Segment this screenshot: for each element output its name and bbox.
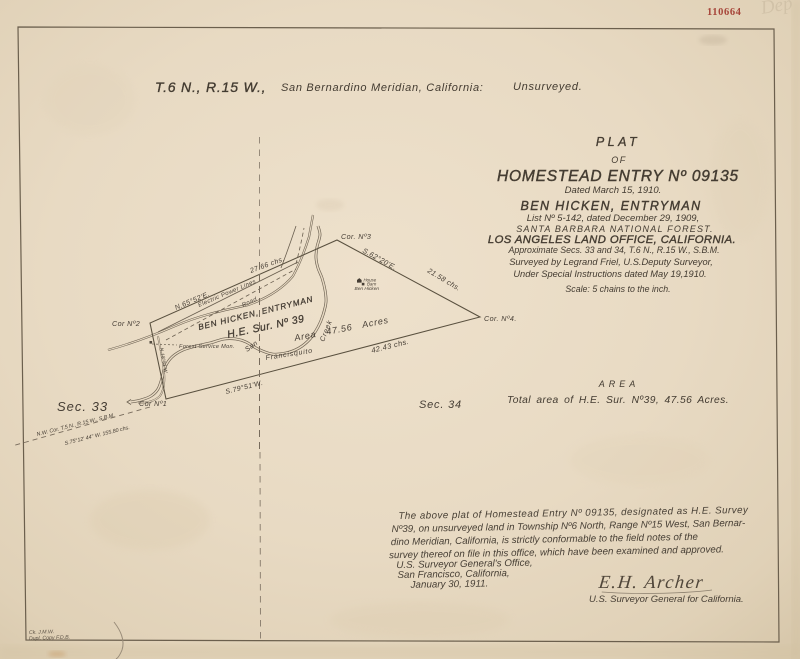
svg-text:Scale: 5 chains to the inch.: Scale: 5 chains to the inch. (565, 284, 670, 294)
svg-text:Ben Hicken: Ben Hicken (355, 286, 380, 292)
svg-text:Sec. 33: Sec. 33 (57, 399, 108, 414)
svg-text:E.H. Archer: E.H. Archer (597, 572, 706, 593)
svg-text:PLAT: PLAT (596, 135, 640, 149)
svg-text:Total area of H.E. Sur. Nº39,: Total area of H.E. Sur. Nº39, 47.56 Acre… (507, 395, 729, 406)
svg-text:T.6 N., R.15 W.,: T.6 N., R.15 W., (155, 79, 266, 95)
svg-text:Dated March 15, 1910.: Dated March 15, 1910. (565, 185, 662, 196)
svg-text:OF: OF (611, 155, 627, 165)
svg-text:Cor. Nº3: Cor. Nº3 (341, 232, 371, 241)
svg-text:Cor. Nº4.: Cor. Nº4. (484, 314, 517, 323)
svg-text:Unsurveyed.: Unsurveyed. (513, 81, 582, 93)
svg-text:Surveyed by Legrand Friel, U.S: Surveyed by Legrand Friel, U.S.Deputy Su… (509, 257, 713, 267)
svg-text:Cor Nº1: Cor Nº1 (139, 399, 167, 408)
svg-text:January 30, 1911.: January 30, 1911. (410, 578, 489, 590)
svg-text:HOMESTEAD ENTRY Nº 09135: HOMESTEAD ENTRY Nº 09135 (497, 168, 739, 185)
svg-text:U.S. Surveyor General for Cali: U.S. Surveyor General for California. (589, 594, 744, 605)
svg-text:Cor Nº2: Cor Nº2 (112, 319, 140, 328)
svg-text:List Nº 5-142, dated December: List Nº 5-142, dated December 29, 1909, (527, 213, 699, 224)
svg-text:Under Special Instructions dat: Under Special Instructions dated May 19,… (513, 269, 706, 279)
svg-text:AREA: AREA (598, 379, 640, 389)
svg-text:Barn: Barn (367, 281, 377, 286)
svg-text:110664: 110664 (707, 7, 742, 18)
svg-text:Sec. 34: Sec. 34 (419, 399, 462, 411)
svg-text:San Bernardino Meridian, Calif: San Bernardino Meridian, California: (281, 82, 484, 94)
svg-text:Forest Service Mon.: Forest Service Mon. (179, 344, 235, 350)
svg-text:SANTA BARBARA NATIONAL FOREST.: SANTA BARBARA NATIONAL FOREST. (516, 224, 714, 234)
svg-text:BEN HICKEN, ENTRYMAN: BEN HICKEN, ENTRYMAN (520, 199, 701, 213)
svg-text:Approximate Secs. 33 and 34, T: Approximate Secs. 33 and 34, T.6 N., R.1… (507, 245, 719, 255)
